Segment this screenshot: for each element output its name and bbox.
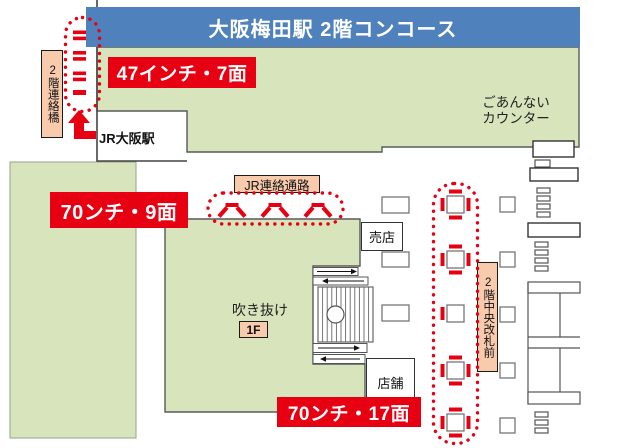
pillar — [447, 196, 464, 213]
info-counter-line1: ごあんない — [477, 95, 555, 111]
central-gate-label: 2階中央改札前 — [477, 262, 498, 372]
pillar-column-small — [500, 197, 515, 433]
pillar — [447, 251, 464, 268]
pillar — [447, 414, 464, 431]
sign-70inch-9: 70ンチ・9面 — [50, 192, 188, 228]
pillar-column-signage — [447, 196, 464, 431]
info-counter-line2: カウンター — [477, 111, 555, 127]
shop-box: 店舗 — [366, 358, 415, 399]
station-structure — [530, 168, 578, 181]
pillar — [500, 307, 515, 322]
pillar — [382, 252, 409, 267]
bridge-label: 2階連絡橋 — [41, 50, 63, 138]
jr-passage-label: JR連絡通路 — [234, 175, 320, 193]
kiosk-box: 売店 — [361, 222, 403, 251]
escalator-lower — [313, 344, 367, 364]
pillar-column-wide — [382, 197, 409, 321]
ticket-gate-machines — [537, 188, 550, 217]
info-counter-label: ごあんない カウンター — [477, 95, 555, 126]
stair-landing — [327, 306, 344, 323]
pillar — [447, 362, 464, 379]
gate-structures — [528, 141, 580, 433]
ticket-gate-machines — [535, 242, 548, 271]
atrium-label: 吹き抜け — [223, 300, 297, 320]
central-gate-label-text: 2階中央改札前 — [482, 277, 494, 358]
pillar — [382, 197, 409, 213]
escalator-upper — [313, 268, 368, 286]
stairs — [318, 287, 373, 342]
station-structure — [533, 141, 574, 157]
station-floor-map: 大阪梅田駅 2階コンコース 2階連絡橋 JR連絡通路 2階中央改札前 1F JR… — [0, 0, 621, 448]
pillar — [500, 197, 515, 212]
pillar — [500, 418, 515, 433]
pillar — [447, 305, 464, 322]
platform-stair-structure — [528, 282, 580, 404]
ticket-gate-machines — [535, 412, 548, 433]
pillar — [500, 363, 515, 378]
escalator-direction-arrows — [318, 345, 360, 361]
floor-1f-label: 1F — [239, 321, 268, 338]
sign-70inch-17: 70ンチ・17面 — [277, 397, 421, 427]
jr-osaka-label: JR大阪駅 — [99, 128, 155, 147]
ticket-machine — [535, 160, 550, 167]
page-title: 大阪梅田駅 2階コンコース — [86, 7, 580, 47]
pillar — [382, 305, 409, 321]
station-structure — [528, 223, 580, 237]
pillar — [500, 252, 515, 267]
sign-47inch-7: 47インチ・7面 — [108, 57, 256, 88]
bridge-label-text: 2階連絡橋 — [46, 65, 58, 123]
